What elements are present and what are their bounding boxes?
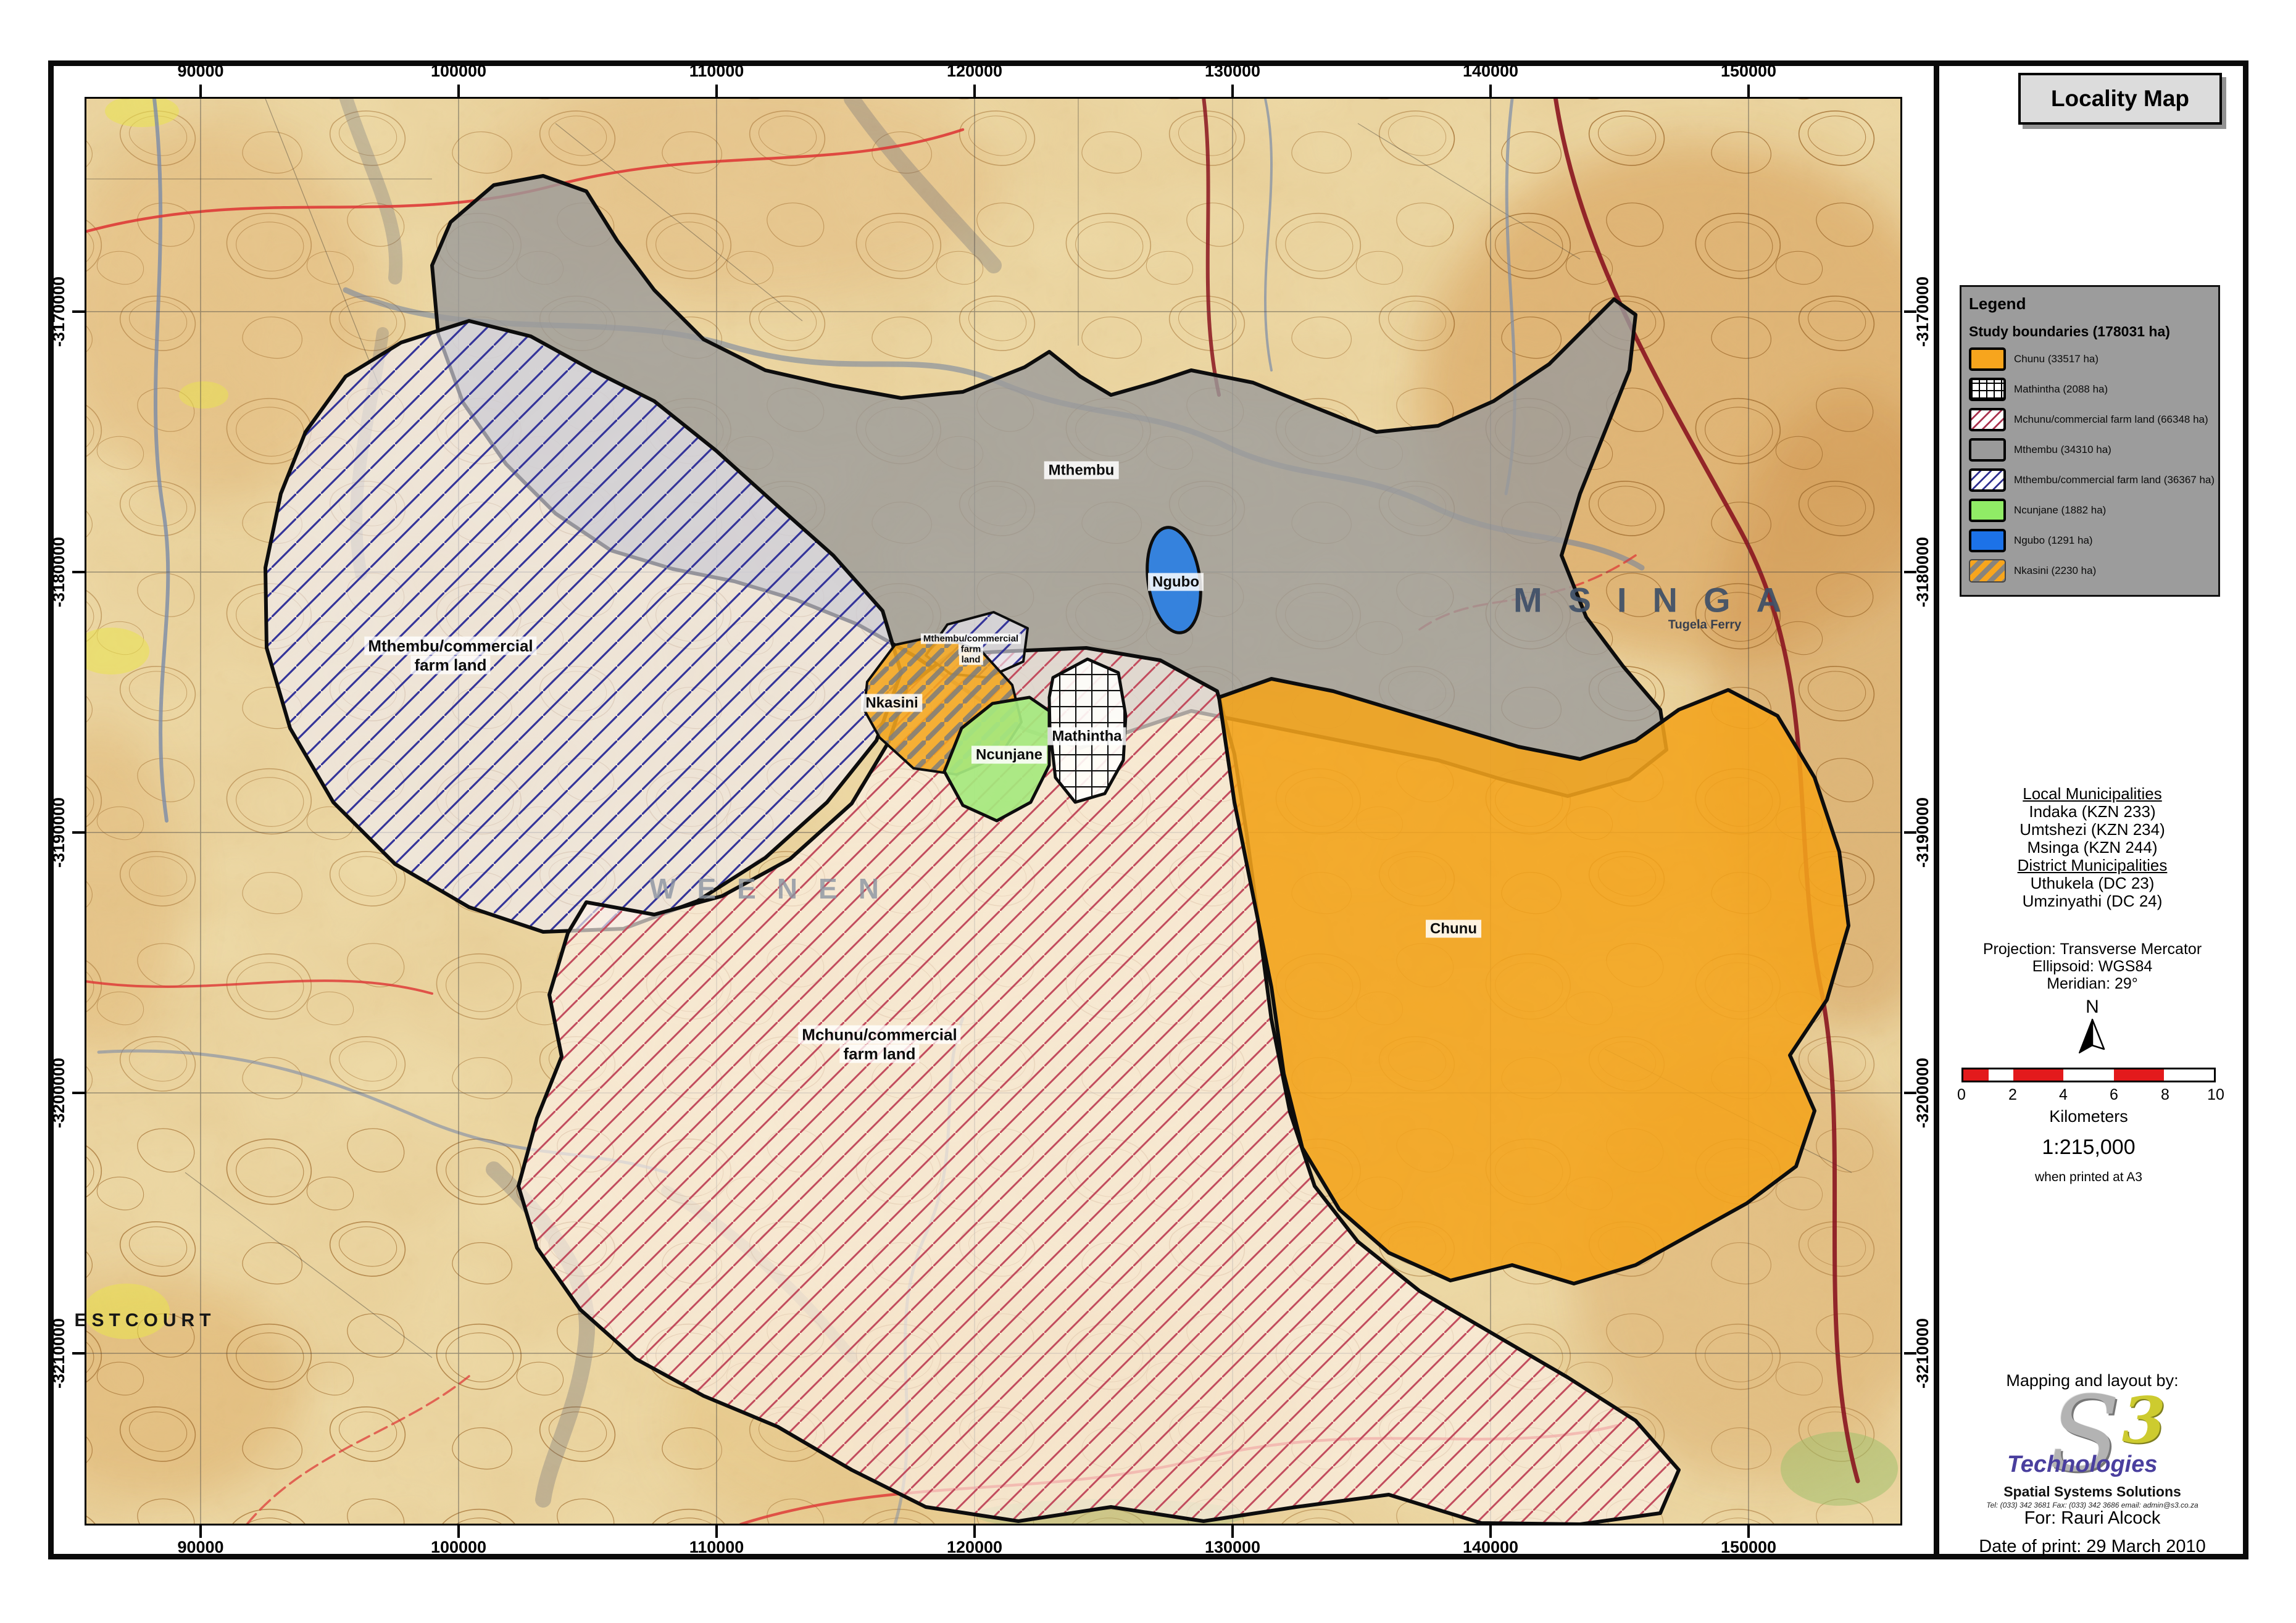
y-tick-label-right: -3210000 bbox=[1913, 1304, 1932, 1403]
mthembu-cfl-swatch-icon bbox=[1969, 468, 2006, 492]
nkasini-label: Nkasini bbox=[861, 694, 922, 712]
local-municipality-item: Umtshezi (KZN 234) bbox=[1939, 821, 2245, 839]
y-tick-left bbox=[72, 1352, 85, 1355]
y-tick-left bbox=[72, 831, 85, 834]
x-tick-label-top: 150000 bbox=[1699, 62, 1798, 80]
ngubo-swatch-icon bbox=[1969, 529, 2006, 552]
tugela-ferry-label: Tugela Ferry bbox=[1668, 618, 1742, 633]
mthembu-commercial-farm-land-label: Mthembu/commercialfarm land bbox=[364, 636, 536, 675]
scalebar-number: 10 bbox=[2207, 1086, 2224, 1104]
date-of-print: Date of print: 29 March 2010 bbox=[1939, 1537, 2245, 1557]
x-tick-bottom bbox=[199, 1525, 202, 1538]
x-tick-bottom bbox=[1231, 1525, 1234, 1538]
x-tick-label-bottom: 90000 bbox=[151, 1538, 250, 1556]
x-tick-label-bottom: 150000 bbox=[1699, 1538, 1798, 1556]
mthembu-cfl-small-label: Mthembu/commercialfarmland bbox=[921, 634, 1021, 665]
legend-item-label: Mthembu/commercial farm land (36367 ha) bbox=[2014, 474, 2215, 486]
logo-tagline: Spatial Systems Solutions bbox=[1939, 1484, 2245, 1500]
y-tick-label-left: -3210000 bbox=[49, 1304, 68, 1403]
ngubo-label: Ngubo bbox=[1148, 573, 1204, 591]
chunu-swatch-icon bbox=[1969, 347, 2006, 371]
mathintha-swatch-icon bbox=[1969, 378, 2006, 401]
scale-units: Kilometers bbox=[1961, 1107, 2216, 1126]
legend-item: Mathintha (2088 ha) bbox=[1969, 374, 2213, 404]
x-tick-bottom bbox=[973, 1525, 976, 1538]
weenen-label: WEENEN bbox=[649, 872, 900, 905]
y-tick-label-left: -3170000 bbox=[49, 262, 68, 361]
panel-divider bbox=[1934, 60, 1939, 1559]
y-tick-label-right: -3180000 bbox=[1913, 523, 1932, 621]
scalebar-number: 4 bbox=[2059, 1086, 2068, 1104]
title-box: Locality Map bbox=[2018, 73, 2222, 125]
page: Locality Map Legend Study boundaries (17… bbox=[0, 0, 2296, 1623]
legend-item-label: Mthembu (34310 ha) bbox=[2014, 444, 2111, 456]
district-municipalities-list: Uthukela (DC 23)Umzinyathi (DC 24) bbox=[1939, 874, 2245, 910]
scalebar-number: 6 bbox=[2110, 1086, 2118, 1104]
x-tick-label-top: 110000 bbox=[667, 62, 766, 80]
x-tick-top bbox=[973, 85, 976, 97]
mchunu-commercial-farm-land-label: Mchunu/commercialfarm land bbox=[798, 1025, 960, 1064]
y-tick-left bbox=[72, 1092, 85, 1094]
logo-3-glyph: 3 bbox=[2122, 1390, 2166, 1451]
x-tick-bottom bbox=[1747, 1525, 1750, 1538]
local-municipality-item: Msinga (KZN 244) bbox=[1939, 839, 2245, 857]
district-municipality-item: Umzinyathi (DC 24) bbox=[1939, 892, 2245, 910]
legend-item: Ncunjane (1882 ha) bbox=[1969, 495, 2213, 525]
ncunjane-label: Ncunjane bbox=[971, 746, 1047, 764]
for-line: For: Rauri Alcock bbox=[1939, 1508, 2245, 1529]
legend-item: Mthembu (34310 ha) bbox=[1969, 434, 2213, 465]
scale-bar-numbers: 0246810 bbox=[1961, 1086, 2216, 1105]
north-arrow-icon bbox=[2071, 1017, 2114, 1056]
msinga-label: MSINGA bbox=[1513, 580, 1807, 620]
legend-item-label: Mathintha (2088 ha) bbox=[2014, 383, 2108, 396]
projection-block: Projection: Transverse MercatorEllipsoid… bbox=[1939, 940, 2245, 992]
x-tick-label-top: 100000 bbox=[409, 62, 508, 80]
legend-item: Mchunu/commercial farm land (66348 ha) bbox=[1969, 404, 2213, 434]
x-tick-bottom bbox=[457, 1525, 460, 1538]
legend-item: Nkasini (2230 ha) bbox=[1969, 555, 2213, 586]
nkasini-swatch-icon bbox=[1969, 559, 2006, 583]
municipalities-block: Local Municipalities Indaka (KZN 233)Umt… bbox=[1939, 785, 2245, 910]
y-tick-label-right: -3190000 bbox=[1913, 783, 1932, 882]
x-tick-label-top: 140000 bbox=[1441, 62, 1540, 80]
x-tick-label-bottom: 130000 bbox=[1183, 1538, 1282, 1556]
map-title: Locality Map bbox=[2051, 86, 2189, 112]
credits-block: Mapping and layout by: S 3 Technologies … bbox=[1939, 1371, 2245, 1563]
legend-items: Chunu (33517 ha)Mathintha (2088 ha)Mchun… bbox=[1969, 344, 2213, 586]
y-tick-left bbox=[72, 571, 85, 573]
y-tick-label-left: -3180000 bbox=[49, 523, 68, 621]
ncunjane-swatch-icon bbox=[1969, 499, 2006, 522]
scale-bar-segments bbox=[1961, 1068, 2216, 1082]
scale-note: when printed at A3 bbox=[1961, 1170, 2216, 1185]
legend-item-label: Ncunjane (1882 ha) bbox=[2014, 504, 2106, 517]
legend-item-label: Ngubo (1291 ha) bbox=[2014, 534, 2093, 547]
x-tick-label-top: 90000 bbox=[151, 62, 250, 80]
projection-line: Meridian: 29° bbox=[1939, 975, 2245, 992]
legend-title: Legend bbox=[1969, 294, 2213, 313]
x-tick-label-bottom: 120000 bbox=[925, 1538, 1024, 1556]
local-municipalities-heading: Local Municipalities bbox=[1939, 785, 2245, 803]
s3-technologies-logo: S 3 Technologies Spatial Systems Solutio… bbox=[1939, 1393, 2245, 1505]
estcourt-label: ESTCOURT bbox=[75, 1310, 216, 1331]
x-tick-label-top: 130000 bbox=[1183, 62, 1282, 80]
chunu-label: Chunu bbox=[1426, 920, 1481, 938]
legend-subtitle: Study boundaries (178031 ha) bbox=[1969, 323, 2213, 340]
legend-item: Ngubo (1291 ha) bbox=[1969, 525, 2213, 555]
legend-item-label: Mchunu/commercial farm land (66348 ha) bbox=[2014, 413, 2208, 426]
legend-item: Chunu (33517 ha) bbox=[1969, 344, 2213, 374]
x-tick-label-top: 120000 bbox=[925, 62, 1024, 80]
y-tick-label-right: -3170000 bbox=[1913, 262, 1932, 361]
north-label: N bbox=[2069, 997, 2116, 1017]
mthembu-label: Mthembu bbox=[1044, 462, 1119, 479]
scalebar-number: 2 bbox=[2008, 1086, 2017, 1104]
local-municipalities-list: Indaka (KZN 233)Umtshezi (KZN 234)Msinga… bbox=[1939, 803, 2245, 857]
district-municipality-item: Uthukela (DC 23) bbox=[1939, 874, 2245, 892]
projection-line: Ellipsoid: WGS84 bbox=[1939, 958, 2245, 975]
scalebar-number: 8 bbox=[2161, 1086, 2169, 1104]
mathintha-label: Mathintha bbox=[1047, 728, 1126, 745]
x-tick-top bbox=[457, 85, 460, 97]
x-tick-label-bottom: 140000 bbox=[1441, 1538, 1540, 1556]
x-tick-bottom bbox=[715, 1525, 718, 1538]
legend: Legend Study boundaries (178031 ha) Chun… bbox=[1960, 285, 2220, 597]
scalebar-number: 0 bbox=[1957, 1086, 1966, 1104]
y-tick-label-left: -3200000 bbox=[49, 1044, 68, 1142]
x-tick-top bbox=[1231, 85, 1234, 97]
legend-item-label: Chunu (33517 ha) bbox=[2014, 353, 2098, 365]
y-tick-left bbox=[72, 310, 85, 313]
scale-ratio: 1:215,000 bbox=[1961, 1135, 2216, 1160]
legend-item: Mthembu/commercial farm land (36367 ha) bbox=[1969, 465, 2213, 495]
legend-item-label: Nkasini (2230 ha) bbox=[2014, 565, 2096, 577]
local-municipality-item: Indaka (KZN 233) bbox=[1939, 803, 2245, 821]
y-tick-label-left: -3190000 bbox=[49, 783, 68, 882]
north-arrow: N bbox=[2069, 997, 2116, 1060]
projection-line: Projection: Transverse Mercator bbox=[1939, 940, 2245, 958]
x-tick-top bbox=[715, 85, 718, 97]
x-tick-label-bottom: 110000 bbox=[667, 1538, 766, 1556]
scale-bar: 0246810 Kilometers 1:215,000 when printe… bbox=[1961, 1068, 2216, 1197]
y-tick-label-right: -3200000 bbox=[1913, 1044, 1932, 1142]
mchunu-swatch-icon bbox=[1969, 408, 2006, 431]
mthembu-swatch-icon bbox=[1969, 438, 2006, 462]
district-municipalities-heading: District Municipalities bbox=[1939, 857, 2245, 874]
x-tick-top bbox=[1747, 85, 1750, 97]
x-tick-top bbox=[199, 85, 202, 97]
x-tick-top bbox=[1489, 85, 1492, 97]
x-tick-bottom bbox=[1489, 1525, 1492, 1538]
logo-wordmark: Technologies bbox=[2007, 1451, 2158, 1478]
x-tick-label-bottom: 100000 bbox=[409, 1538, 508, 1556]
